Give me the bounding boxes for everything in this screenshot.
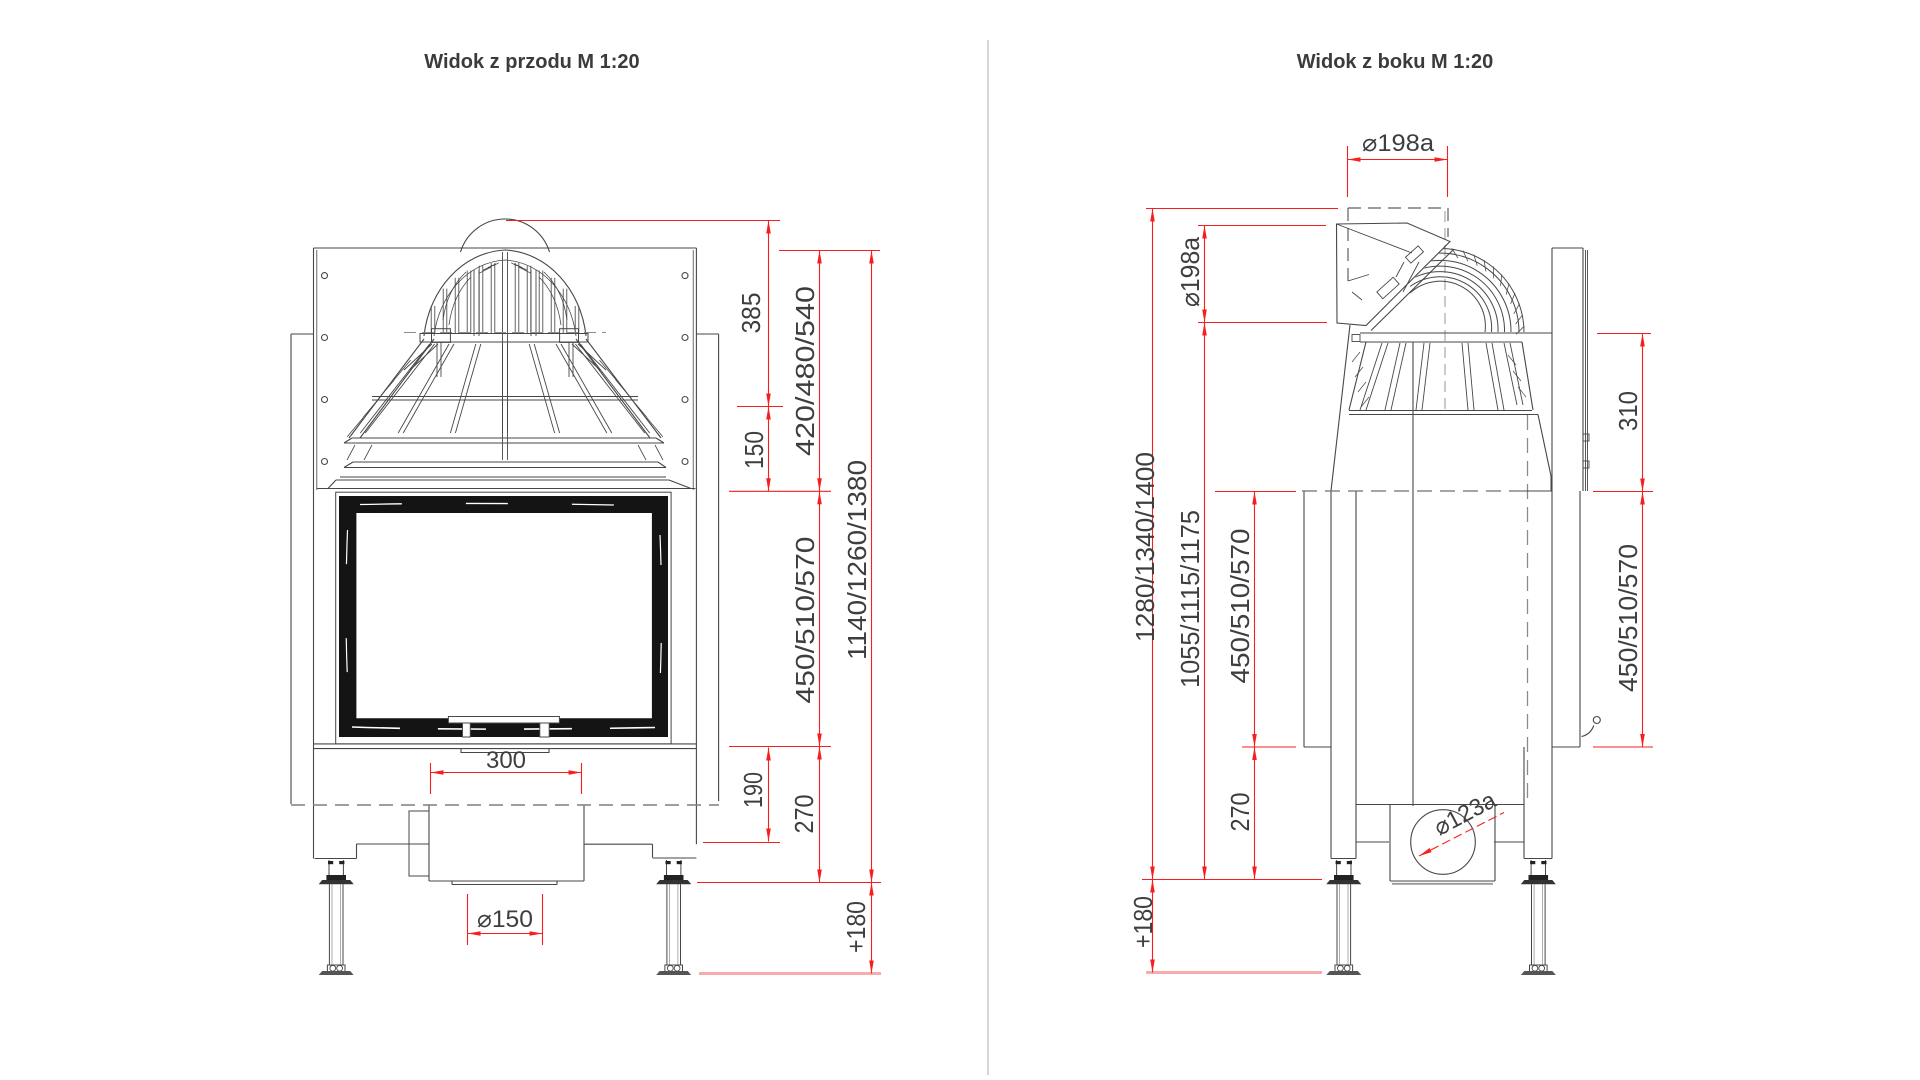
svg-text:⌀123a: ⌀123a	[1430, 786, 1502, 841]
svg-text:1140/1260/1380: 1140/1260/1380	[842, 460, 872, 660]
svg-text:190: 190	[738, 772, 768, 808]
svg-text:270: 270	[1225, 793, 1255, 832]
svg-text:1280/1340/1400: 1280/1340/1400	[1130, 452, 1160, 642]
svg-text:+180: +180	[1128, 896, 1158, 948]
svg-text:+180: +180	[841, 901, 871, 953]
svg-text:450/510/570: 450/510/570	[1613, 544, 1643, 692]
svg-text:270: 270	[789, 795, 819, 834]
svg-text:⌀150: ⌀150	[477, 906, 533, 933]
svg-text:300: 300	[486, 747, 526, 774]
svg-text:420/480/540: 420/480/540	[790, 286, 820, 456]
svg-text:385: 385	[736, 293, 766, 334]
svg-text:150: 150	[739, 431, 769, 469]
svg-text:450/510/570: 450/510/570	[790, 537, 820, 704]
svg-text:310: 310	[1613, 391, 1643, 431]
svg-text:450/510/570: 450/510/570	[1225, 529, 1255, 684]
svg-text:Widok z boku M 1:20: Widok z boku M 1:20	[1297, 51, 1494, 73]
svg-text:Widok z przodu M 1:20: Widok z przodu M 1:20	[424, 51, 639, 73]
svg-text:⌀198a: ⌀198a	[1175, 236, 1205, 307]
svg-text:⌀198a: ⌀198a	[1362, 130, 1435, 157]
svg-text:1055/1115/1175: 1055/1115/1175	[1175, 510, 1205, 688]
